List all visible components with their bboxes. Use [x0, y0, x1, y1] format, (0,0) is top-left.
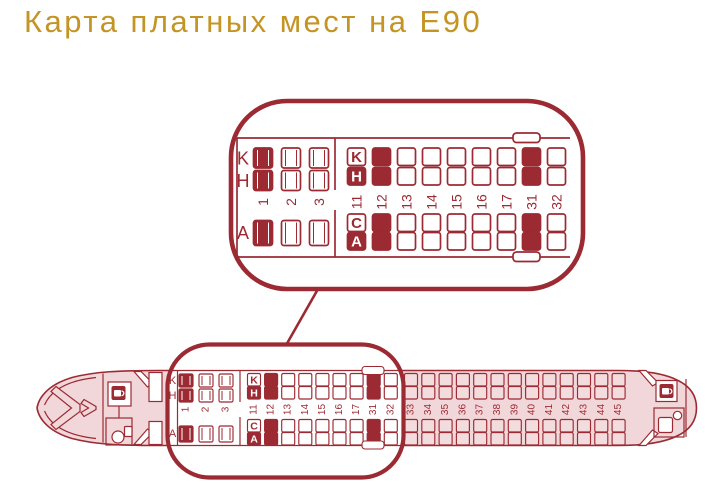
- plane-seat-14C: [299, 420, 312, 433]
- plane-seat-44C: [595, 420, 608, 433]
- detail-seat-13C: [398, 214, 416, 232]
- toilet-icon-bowl: [659, 418, 673, 433]
- detail-seat-32A: [548, 233, 566, 251]
- toilet-icon-tank: [673, 411, 681, 419]
- plane-seat-39K: [508, 374, 521, 387]
- plane-seat-38H: [491, 387, 504, 400]
- detail-seat-14C: [423, 214, 441, 232]
- plane-seat-14H: [299, 387, 312, 400]
- detail-seat-31A: [523, 233, 541, 251]
- detail-row-number-1: 1: [255, 198, 271, 206]
- detail-seat-15K: [448, 148, 466, 166]
- plane-seat-12K: [265, 374, 278, 387]
- plane-seat-32A: [384, 433, 397, 446]
- plane-column-letter-K: K: [169, 375, 177, 387]
- plane-seat-13K: [282, 374, 295, 387]
- plane-seat-40H: [526, 387, 539, 400]
- detail-seat-2H: [282, 171, 301, 191]
- plane-seat-37H: [474, 387, 487, 400]
- plane-seat-39A: [508, 433, 521, 446]
- detail-seat-14A: [423, 233, 441, 251]
- detail-seat-11H-label: H: [351, 168, 362, 185]
- toilet-icon-tank: [125, 427, 133, 437]
- plane-seat-43A: [578, 433, 591, 446]
- detail-row-number-17: 17: [499, 194, 515, 210]
- plane-seat-45A: [612, 433, 625, 446]
- front-galley-counter-bottom: [149, 422, 162, 445]
- plane-seat-16C: [333, 420, 346, 433]
- plane-seat-42H: [560, 387, 573, 400]
- plane-seat-1H: [179, 389, 193, 402]
- detail-seat-16K: [473, 148, 491, 166]
- plane-seat-44K: [595, 374, 608, 387]
- front-galley-counter-top: [149, 373, 162, 402]
- coffee-cup-icon-cup: [662, 388, 669, 395]
- plane-row-number-11: 11: [249, 404, 260, 415]
- detail-column-letter-K: K: [237, 149, 249, 169]
- plane-seat-2K: [199, 374, 213, 387]
- detail-row-number-16: 16: [474, 194, 490, 210]
- plane-seat-2A: [199, 426, 213, 442]
- plane-seat-12H: [265, 387, 278, 400]
- plane-seat-3A: [219, 426, 233, 442]
- plane-seat-37C: [474, 420, 487, 433]
- plane-row-number-16: 16: [334, 404, 345, 416]
- plane-seat-43H: [578, 387, 591, 400]
- detail-seat-1A: [254, 221, 273, 246]
- plane-seat-38K: [491, 374, 504, 387]
- detail-seat-12H: [373, 168, 391, 186]
- detail-seat-12A: [373, 233, 391, 251]
- plane-row-number-31: 31: [368, 404, 379, 416]
- plane-row-number-14: 14: [300, 404, 311, 416]
- plane-seat-13A: [282, 433, 295, 446]
- plane-seat-39C: [508, 420, 521, 433]
- plane-seat-42A: [560, 433, 573, 446]
- detail-seat-1K: [254, 148, 273, 168]
- detail-seat-17A: [498, 233, 516, 251]
- detail-row-number-11: 11: [349, 195, 365, 210]
- toilet-icon-bowl: [112, 431, 124, 443]
- detail-seat-31H: [523, 168, 541, 186]
- detail-seat-16C: [473, 214, 491, 232]
- plane-seat-41A: [543, 433, 556, 446]
- plane-seat-15C: [316, 420, 329, 433]
- detail-seat-13K: [398, 148, 416, 166]
- plane-seat-11C-label: C: [250, 420, 258, 432]
- plane-seat-1K: [179, 374, 193, 387]
- plane-seat-35A: [439, 433, 452, 446]
- plane-seat-31K: [367, 374, 380, 387]
- detail-seat-15C: [448, 214, 466, 232]
- plane-seat-37K: [474, 374, 487, 387]
- detail-seat-13H: [398, 168, 416, 186]
- detail-seat-12C: [373, 214, 391, 232]
- plane-seat-31H: [367, 387, 380, 400]
- detail-seat-13A: [398, 233, 416, 251]
- detail-seat-32K: [548, 148, 566, 166]
- plane-seat-14K: [299, 374, 312, 387]
- plane-row-number-43: 43: [579, 404, 590, 416]
- plane-row-number-33: 33: [406, 404, 417, 416]
- plane-row-number-44: 44: [596, 404, 607, 416]
- plane-seat-16H: [333, 387, 346, 400]
- plane-row-number-45: 45: [613, 404, 624, 416]
- detail-seat-15H: [448, 168, 466, 186]
- plane-seat-40K: [526, 374, 539, 387]
- plane-seat-17C: [350, 420, 363, 433]
- plane-seat-15A: [316, 433, 329, 446]
- plane-seat-37A: [474, 433, 487, 446]
- plane-column-letter-A: A: [169, 428, 177, 440]
- detail-seat-31C: [523, 214, 541, 232]
- plane-row-number-39: 39: [509, 404, 520, 416]
- plane-seat-38C: [491, 420, 504, 433]
- plane-row-number-34: 34: [423, 404, 434, 416]
- plane-seat-34A: [422, 433, 435, 446]
- plane-column-letter-H: H: [169, 390, 177, 402]
- detail-row-number-2: 2: [283, 198, 299, 206]
- plane-seat-33C: [405, 420, 418, 433]
- coffee-cup-icon: [660, 384, 674, 398]
- detail-seat-11A-label: A: [351, 233, 362, 250]
- plane-seat-45H: [612, 387, 625, 400]
- plane-row-number-32: 32: [385, 404, 396, 416]
- plane-row-number-17: 17: [351, 404, 362, 416]
- plane-seat-41K: [543, 374, 556, 387]
- plane-seat-11A-label: A: [250, 433, 258, 445]
- plane-seat-15H: [316, 387, 329, 400]
- plane-seat-42K: [560, 374, 573, 387]
- plane-seat-36H: [456, 387, 469, 400]
- detail-column-letter-H: H: [237, 171, 250, 191]
- plane-seat-3H: [219, 389, 233, 402]
- plane-seat-13H: [282, 387, 295, 400]
- connector-line: [285, 289, 318, 347]
- plane-seat-17A: [350, 433, 363, 446]
- plane-seat-32C: [384, 420, 397, 433]
- plane-row-number-2: 2: [201, 406, 212, 412]
- detail-seat-2K: [282, 148, 301, 168]
- plane-seat-32H: [384, 387, 397, 400]
- plane-seat-40A: [526, 433, 539, 446]
- detail-row-number-31: 31: [524, 194, 540, 210]
- plane-seat-45K: [612, 374, 625, 387]
- detail-seat-17H: [498, 168, 516, 186]
- plane-row-number-35: 35: [440, 404, 451, 416]
- detail-seat-16A: [473, 233, 491, 251]
- plane-seat-42C: [560, 420, 573, 433]
- plane-row-number-42: 42: [561, 404, 572, 416]
- detail-row-number-32: 32: [549, 194, 565, 210]
- plane-row-number-41: 41: [544, 404, 555, 416]
- detail-column-letter-A: A: [237, 223, 249, 243]
- plane-seat-34H: [422, 387, 435, 400]
- detail-row-number-14: 14: [424, 194, 440, 210]
- plane-seat-32K: [384, 374, 397, 387]
- plane-seat-38A: [491, 433, 504, 446]
- plane-seat-35C: [439, 420, 452, 433]
- coffee-cup-icon: [112, 386, 126, 400]
- plane-seat-15K: [316, 374, 329, 387]
- plane-seat-11H-label: H: [250, 387, 258, 399]
- detail-seat-3H: [310, 171, 329, 191]
- plane-seat-36A: [456, 433, 469, 446]
- plane-seat-12C: [265, 420, 278, 433]
- plane-seat-43K: [578, 374, 591, 387]
- plane-seat-12A: [265, 433, 278, 446]
- detail-row-number-3: 3: [311, 198, 327, 206]
- plane-seat-44A: [595, 433, 608, 446]
- plane-row-number-38: 38: [492, 404, 503, 416]
- plane-row-number-40: 40: [527, 404, 538, 416]
- plane-seat-33K: [405, 374, 418, 387]
- detail-row-number-12: 12: [374, 194, 390, 210]
- detail-seat-32C: [548, 214, 566, 232]
- detail-seat-16H: [473, 168, 491, 186]
- detail-seat-17K: [498, 148, 516, 166]
- plane-seat-31C: [367, 420, 380, 433]
- plane-seat-41C: [543, 420, 556, 433]
- plane-seat-16K: [333, 374, 346, 387]
- plane-seat-16A: [333, 433, 346, 446]
- plane-row-number-12: 12: [266, 404, 277, 416]
- plane-seat-11K-label: K: [250, 374, 258, 386]
- plane-seat-35H: [439, 387, 452, 400]
- detail-seat-3K: [310, 148, 329, 168]
- plane-seat-36C: [456, 420, 469, 433]
- plane-seat-34C: [422, 420, 435, 433]
- detail-seat-12K: [373, 148, 391, 166]
- exit-marker: [362, 441, 384, 449]
- detail-row-number-15: 15: [449, 194, 465, 210]
- plane-seat-35K: [439, 374, 452, 387]
- plane-row-number-37: 37: [475, 404, 486, 416]
- plane-row-number-13: 13: [283, 404, 294, 416]
- plane-seat-36K: [456, 374, 469, 387]
- plane-seat-1A: [179, 426, 193, 442]
- detail-seat-11K-label: K: [351, 149, 362, 166]
- plane-seat-13C: [282, 420, 295, 433]
- plane-seat-33A: [405, 433, 418, 446]
- coffee-cup-icon-cup: [114, 390, 121, 397]
- plane-seat-33H: [405, 387, 418, 400]
- plane-seat-43C: [578, 420, 591, 433]
- plane-row-number-1: 1: [181, 406, 192, 412]
- detail-seat-31K: [523, 148, 541, 166]
- detail-seat-3A: [310, 221, 329, 246]
- plane-seat-44H: [595, 387, 608, 400]
- detail-seat-32H: [548, 168, 566, 186]
- detail-seat-2A: [282, 221, 301, 246]
- plane-seat-39H: [508, 387, 521, 400]
- exit-marker: [513, 133, 540, 143]
- exit-marker: [362, 367, 384, 375]
- detail-seat-17C: [498, 214, 516, 232]
- detail-seat-14H: [423, 168, 441, 186]
- plane-seat-14A: [299, 433, 312, 446]
- plane-seat-40C: [526, 420, 539, 433]
- plane-row-number-36: 36: [457, 404, 468, 416]
- plane-seat-3K: [219, 374, 233, 387]
- plane-seat-2H: [199, 389, 213, 402]
- plane-seat-41H: [543, 387, 556, 400]
- plane-seat-17K: [350, 374, 363, 387]
- plane-row-number-3: 3: [221, 406, 232, 412]
- detail-seat-15A: [448, 233, 466, 251]
- plane-row-number-15: 15: [317, 404, 328, 416]
- plane-seat-45C: [612, 420, 625, 433]
- exit-marker: [513, 252, 540, 262]
- detail-seat-14K: [423, 148, 441, 166]
- seat-map-page: Карта платных мест на Е90: [0, 0, 705, 483]
- magnifier-view: KHA123KHCA111213141516173132: [231, 101, 583, 289]
- seat-map-graphic: 33343536373839404142434445 KHA123KHCA111…: [0, 0, 705, 483]
- plane-seat-34K: [422, 374, 435, 387]
- plane-seat-17H: [350, 387, 363, 400]
- detail-row-number-13: 13: [399, 194, 415, 210]
- detail-seat-1H: [254, 171, 273, 191]
- detail-seat-11C-label: C: [351, 215, 362, 232]
